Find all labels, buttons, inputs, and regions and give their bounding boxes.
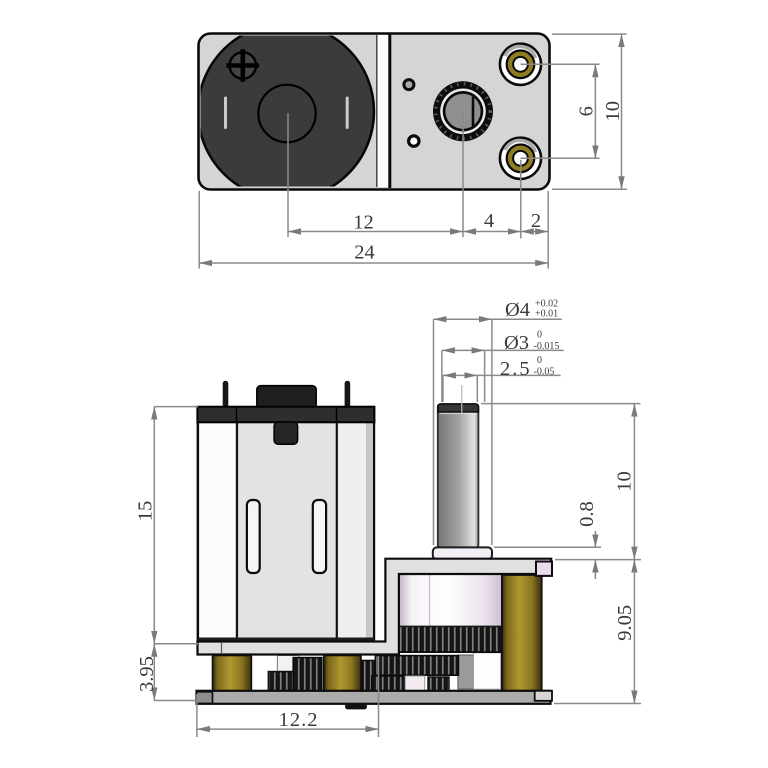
svg-text:3.95: 3.95	[136, 656, 158, 692]
svg-text:12.2: 12.2	[279, 709, 319, 731]
svg-text:Ø4: Ø4	[505, 299, 530, 321]
svg-text:0: 0	[537, 330, 542, 341]
svg-text:15: 15	[135, 501, 157, 522]
svg-text:10: 10	[614, 471, 636, 492]
svg-text:10: 10	[602, 101, 624, 122]
svg-text:6: 6	[576, 106, 598, 116]
svg-text:2: 2	[531, 210, 541, 232]
svg-text:0.8: 0.8	[576, 501, 598, 527]
svg-text:-0.015: -0.015	[534, 341, 560, 352]
svg-text:12: 12	[353, 212, 374, 234]
svg-text:24: 24	[354, 242, 375, 264]
svg-text:9.05: 9.05	[614, 605, 636, 641]
svg-text:2.5: 2.5	[500, 358, 532, 380]
svg-text:4: 4	[484, 210, 494, 232]
svg-text:0: 0	[537, 355, 542, 366]
svg-text:-0.05: -0.05	[534, 367, 555, 378]
svg-text:+0.01: +0.01	[535, 309, 558, 320]
svg-text:Ø3: Ø3	[504, 332, 529, 354]
